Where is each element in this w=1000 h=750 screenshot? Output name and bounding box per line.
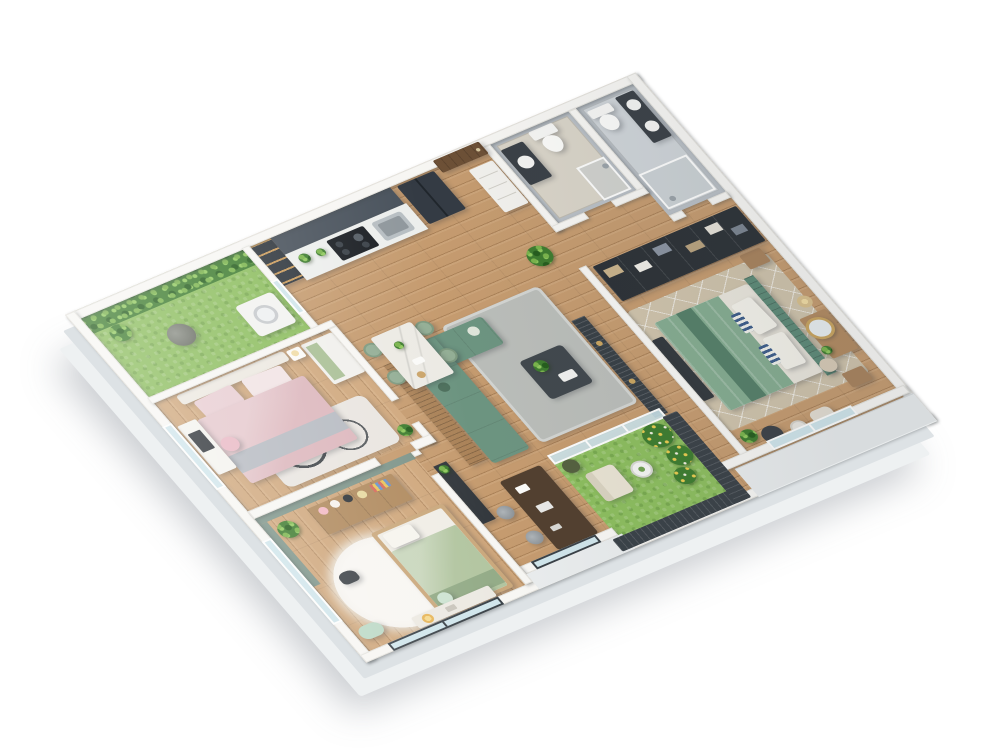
basin — [514, 153, 538, 170]
counter-plant — [314, 247, 328, 257]
lounge-chair — [584, 463, 635, 502]
counter-plant — [296, 252, 313, 265]
shelf-decor — [595, 340, 604, 347]
fridge-door-split — [414, 178, 449, 217]
plush-toy — [341, 493, 355, 503]
sink-basin — [377, 215, 410, 236]
clothing — [634, 260, 653, 272]
floor-plan — [65, 73, 937, 663]
balcony-table — [626, 458, 658, 481]
flowering-shrub — [669, 464, 701, 487]
shelf-line — [497, 192, 516, 201]
clothing — [652, 243, 672, 256]
plush-toy — [316, 506, 330, 516]
door-handle — [475, 147, 481, 152]
burner — [340, 248, 351, 256]
shower-head — [668, 195, 677, 202]
shelf-decor — [627, 378, 636, 385]
washer-drum — [249, 302, 284, 327]
clothing — [730, 224, 748, 236]
basin — [624, 97, 644, 112]
coffee-table-plant — [530, 358, 552, 374]
bowl — [415, 370, 428, 379]
door-mullion — [622, 425, 629, 432]
shower-head — [601, 163, 610, 170]
planter-basket — [161, 320, 202, 350]
table-plant — [637, 466, 646, 473]
plush-toy — [328, 499, 342, 509]
window-mullion — [809, 424, 816, 431]
clothing — [685, 240, 706, 253]
apartment-render — [0, 0, 1000, 750]
bar-stool — [493, 503, 518, 521]
shelf-line — [479, 171, 498, 180]
toilet — [528, 123, 573, 157]
shelf-line — [488, 181, 507, 190]
wardrobe-insert — [306, 343, 346, 381]
basin — [642, 119, 662, 134]
plates — [411, 356, 426, 366]
bar-item — [515, 483, 531, 494]
plush-toy — [355, 489, 369, 499]
door-mullion — [585, 441, 592, 448]
tray — [557, 368, 578, 382]
clothing — [704, 222, 723, 235]
table-vase — [392, 340, 406, 350]
books — [369, 479, 391, 493]
window-mullion — [442, 622, 448, 627]
burner — [360, 241, 371, 249]
green-living-wall — [69, 241, 260, 336]
clothing — [603, 264, 624, 278]
desk-item — [445, 604, 458, 612]
bar-item — [550, 523, 563, 531]
burner — [334, 240, 345, 248]
bar-item — [535, 501, 554, 513]
kitchen-sink — [371, 211, 416, 242]
